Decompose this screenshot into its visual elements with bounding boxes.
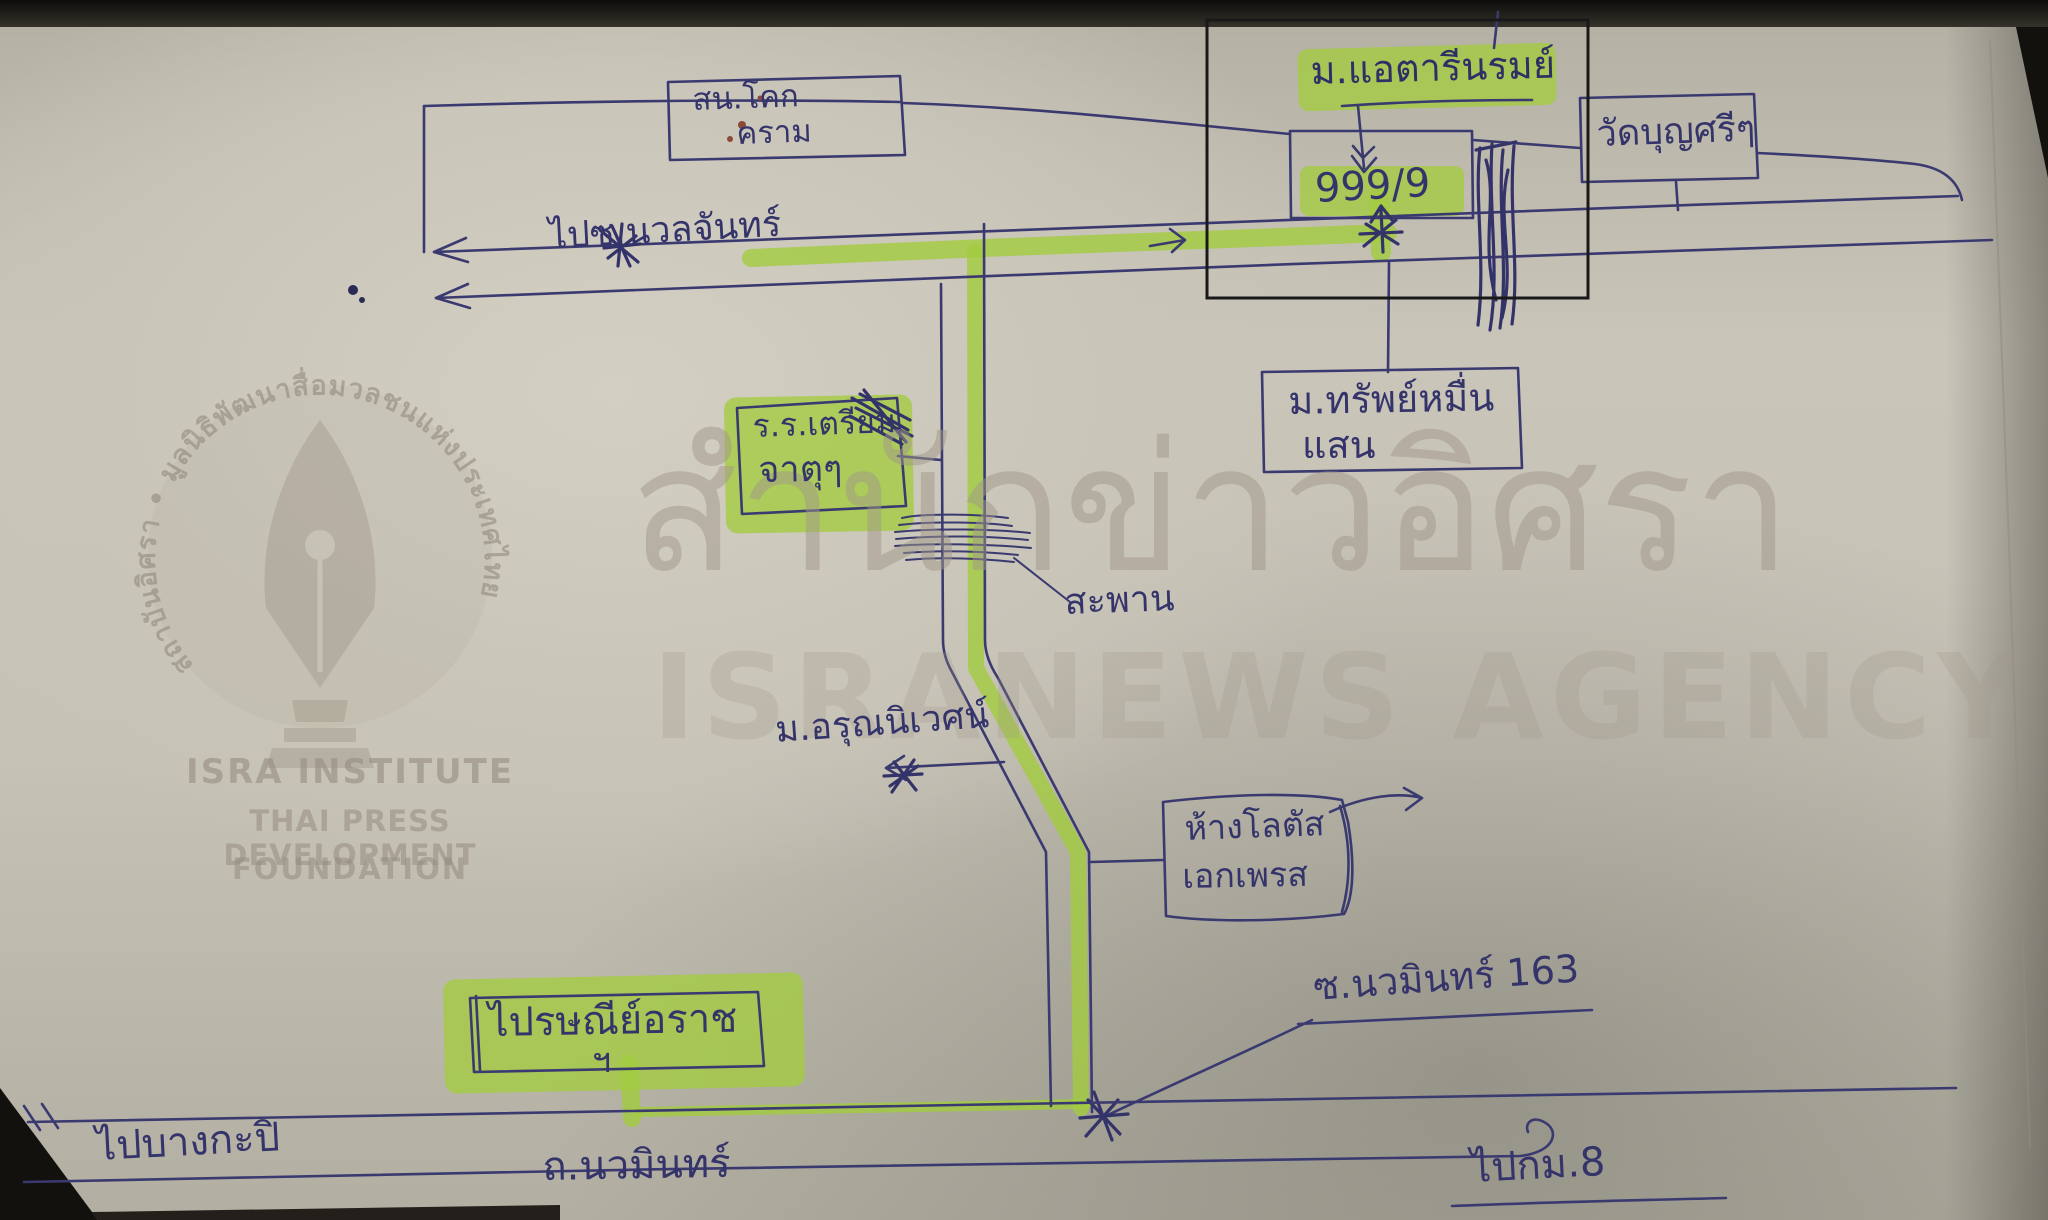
- nawamin-road-label: ถ.นวมินทร์: [542, 1143, 731, 1188]
- village-label-green: ม.แอตารีนรมย์: [1310, 46, 1556, 92]
- school-label-line1: ร.ร.เตรียม: [752, 405, 897, 444]
- sap-muen-saen-label-line1: ม.ทรัพย์หมื่น: [1288, 378, 1495, 421]
- institute-watermark-line3: FOUNDATION: [170, 852, 530, 886]
- police-station-label-line1: สน.โคก: [692, 80, 799, 116]
- photo-corner-bottom-left: [0, 1088, 98, 1220]
- to-bangkapi-label: ไปบางกะปิ: [95, 1116, 281, 1168]
- to-km8-label: ไปกม.8: [1470, 1141, 1606, 1190]
- house-number-label: 999/9: [1314, 162, 1431, 210]
- post-office-label-sub: ฯ: [592, 1044, 611, 1080]
- police-station-label-line2: คราม: [736, 115, 812, 150]
- isra-logo-watermark: สถาบันอิศรา • มูลนิธิพัฒนาสื่อมวลชนแห่งป…: [131, 366, 510, 768]
- temple-label: วัดบุญศรีๆ: [1596, 110, 1756, 153]
- lotus-label-line2: เอกเพรส: [1182, 858, 1308, 896]
- paper-right-edge: [1990, 40, 2030, 1150]
- post-office-label: ไปรษณีย์อราช: [488, 998, 738, 1044]
- sap-muen-saen-label-line2: แสน: [1302, 426, 1376, 466]
- institute-watermark-line1: ISRA INSTITUTE: [170, 752, 530, 792]
- agency-english-watermark: ISRANEWS AGENCY: [652, 628, 2028, 766]
- hand-drawn-map-photo: สถาบันอิศรา • มูลนิธิพัฒนาสื่อมวลชนแห่งป…: [0, 0, 2048, 1220]
- bridge-label: สะพาน: [1064, 580, 1175, 622]
- photo-corner-top-right: [2016, 27, 2048, 178]
- lotus-label-line1: ห้างโลตัส: [1184, 807, 1325, 848]
- school-label-line2: จาตุๆ: [758, 451, 843, 490]
